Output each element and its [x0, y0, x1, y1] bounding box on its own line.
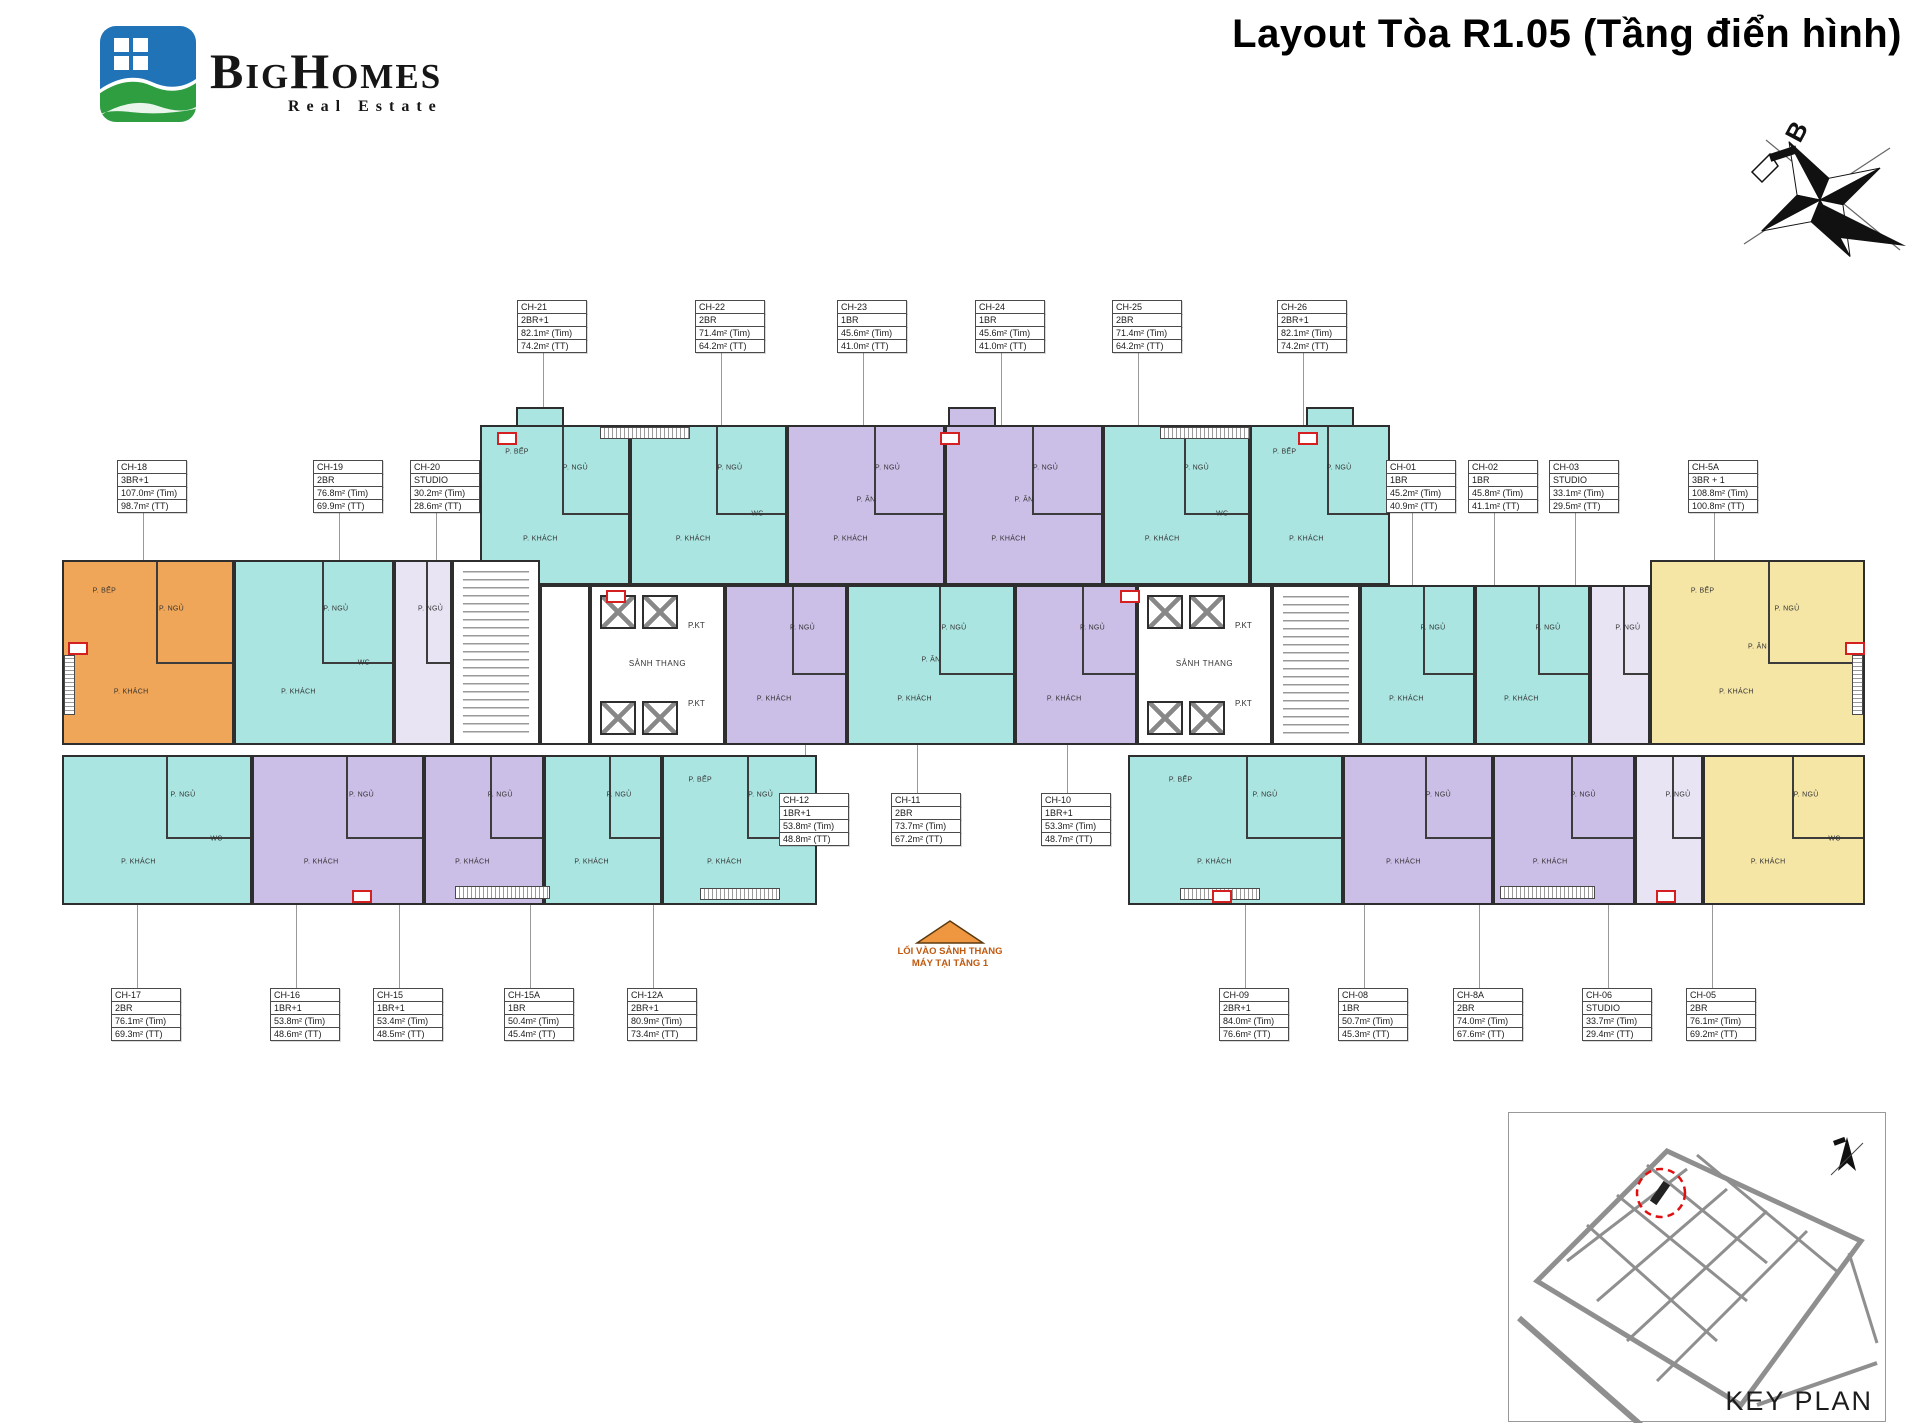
key-plan-map: [1509, 1113, 1887, 1423]
room-label-living: P. KHÁCH: [1504, 696, 1539, 703]
room-label-bedroom: P. NGỦ: [1253, 791, 1278, 798]
loggia-hatch: [1160, 427, 1250, 439]
bay: [1306, 407, 1354, 427]
unit-label-CH-5A: CH-5A3BR + 1108.8m² (Tim)100.8m² (TT): [1688, 460, 1758, 513]
unit-label-tt: 67.2m² (TT): [891, 832, 961, 846]
brand-name: BigHomes: [210, 48, 443, 94]
unit-label-id: CH-19: [313, 460, 383, 474]
room-label-kitchen: P. BẾP: [1273, 448, 1296, 455]
room-label-bedroom: P. NGỦ: [349, 791, 374, 798]
label-leader-line: [1575, 512, 1576, 585]
fire-equipment-box: [1298, 432, 1318, 445]
unit-label-tt: 41.1m² (TT): [1468, 499, 1538, 513]
interior-wall: [609, 837, 660, 839]
label-leader-line: [1364, 905, 1365, 988]
unit-label-tt: 73.4m² (TT): [627, 1027, 697, 1041]
unit-label-tt: 29.5m² (TT): [1549, 499, 1619, 513]
unit-CH-25: P. NGỦP. KHÁCHWC: [1103, 425, 1250, 585]
loggia-hatch: [1500, 886, 1595, 899]
unit-label-type: 1BR+1: [779, 806, 849, 820]
unit-label-tt: 41.0m² (TT): [837, 339, 907, 353]
unit-label-id: CH-23: [837, 300, 907, 314]
unit-label-tim: 76.1m² (Tim): [1686, 1014, 1756, 1028]
unit-label-type: 2BR+1: [1277, 313, 1347, 327]
unit-label-type: 1BR+1: [270, 1001, 340, 1015]
room-label-bedroom: P. NGỦ: [1775, 606, 1800, 613]
compass-north-label: B: [1779, 116, 1814, 147]
unit-label-tt: 76.6m² (TT): [1219, 1027, 1289, 1041]
unit-label-tt: 29.4m² (TT): [1582, 1027, 1652, 1041]
unit-label-CH-06: CH-06STUDIO33.7m² (Tim)29.4m² (TT): [1582, 988, 1652, 1041]
room-label-living: P. KHÁCH: [1386, 859, 1421, 866]
stairs-icon: [1283, 596, 1349, 734]
room-label-wc: WC: [358, 660, 370, 667]
unit-label-CH-21: CH-212BR+182.1m² (Tim)74.2m² (TT): [517, 300, 587, 353]
label-leader-line: [339, 512, 340, 560]
unit-label-tt: 64.2m² (TT): [695, 339, 765, 353]
unit-label-CH-15A: CH-15A1BR50.4m² (Tim)45.4m² (TT): [504, 988, 574, 1041]
unit-CH-02: P. NGỦP. KHÁCH: [1475, 585, 1590, 745]
fire-equipment-box: [352, 890, 372, 903]
unit-label-id: CH-09: [1219, 988, 1289, 1002]
interior-wall: [1032, 513, 1101, 515]
label-leader-line: [917, 745, 918, 793]
elevator-icon: [600, 701, 636, 735]
unit-label-CH-26: CH-262BR+182.1m² (Tim)74.2m² (TT): [1277, 300, 1347, 353]
unit-label-tim: 53.8m² (Tim): [779, 819, 849, 833]
unit-label-CH-05: CH-052BR76.1m² (Tim)69.2m² (TT): [1686, 988, 1756, 1041]
unit-label-CH-18: CH-183BR+1107.0m² (Tim)98.7m² (TT): [117, 460, 187, 513]
interior-wall: [562, 513, 628, 515]
unit-CH-15A: P. NGỦP. KHÁCH: [544, 755, 662, 905]
unit-label-CH-12: CH-121BR+153.8m² (Tim)48.8m² (TT): [779, 793, 849, 846]
label-leader-line: [1303, 352, 1304, 425]
room-label-living: P. KHÁCH: [1389, 696, 1424, 703]
room-label-wc: WC: [210, 835, 222, 842]
unit-label-CH-10: CH-101BR+153.3m² (Tim)48.7m² (TT): [1041, 793, 1111, 846]
unit-label-tt: 64.2m² (TT): [1112, 339, 1182, 353]
room-label-bedroom: P. NGỦ: [159, 606, 184, 613]
room-label-bedroom: P. NGỦ: [1665, 791, 1690, 798]
unit-label-type: 2BR: [1686, 1001, 1756, 1015]
elevator-icon: [1189, 595, 1225, 629]
room-label-wc: WC: [1216, 511, 1228, 518]
unit-label-id: CH-16: [270, 988, 340, 1002]
room-label-bedroom: P. NGỦ: [418, 606, 443, 613]
interior-wall: [1423, 673, 1473, 675]
unit-CH-19: P. NGỦP. KHÁCHWC: [234, 560, 394, 745]
room-label-bedroom: P. NGỦ: [1421, 624, 1446, 631]
interior-wall: [1538, 673, 1588, 675]
unit-label-tt: 45.4m² (TT): [504, 1027, 574, 1041]
room-label-living: P. KHÁCH: [757, 696, 792, 703]
lobby-label: SẢNH THANG: [592, 659, 723, 668]
interior-wall: [1246, 757, 1248, 837]
unit-CH-03: P. NGỦ: [1590, 585, 1650, 745]
room-label-dining: P. ĂN: [1748, 644, 1767, 651]
brand-tagline: Real Estate: [210, 98, 443, 116]
loggia-hatch: [64, 655, 75, 715]
elevator-icon: [642, 701, 678, 735]
interior-wall: [1672, 837, 1701, 839]
room-label-living: P. KHÁCH: [1719, 689, 1754, 696]
label-leader-line: [1067, 745, 1068, 793]
unit-label-tim: 53.3m² (Tim): [1041, 819, 1111, 833]
unit-label-type: STUDIO: [1582, 1001, 1652, 1015]
tech-room-label: P.KT: [688, 699, 705, 708]
unit-label-tim: 80.9m² (Tim): [627, 1014, 697, 1028]
loggia-hatch: [455, 886, 550, 899]
unit-label-id: CH-05: [1686, 988, 1756, 1002]
unit-label-tt: 100.8m² (TT): [1688, 499, 1758, 513]
unit-label-tt: 48.8m² (TT): [779, 832, 849, 846]
interior-wall: [1623, 673, 1648, 675]
unit-label-tt: 69.3m² (TT): [111, 1027, 181, 1041]
unit-label-tim: 50.4m² (Tim): [504, 1014, 574, 1028]
fire-equipment-box: [1656, 890, 1676, 903]
interior-wall: [1082, 673, 1135, 675]
unit-label-type: 1BR: [1468, 473, 1538, 487]
unit-label-tim: 74.0m² (Tim): [1453, 1014, 1523, 1028]
unit-label-tim: 71.4m² (Tim): [1112, 326, 1182, 340]
elevator-core-left: SẢNH THANGP.KTP.KT: [590, 585, 725, 745]
unit-label-CH-02: CH-021BR45.8m² (Tim)41.1m² (TT): [1468, 460, 1538, 513]
room-label-bedroom: P. NGỦ: [171, 791, 196, 798]
unit-label-id: CH-15: [373, 988, 443, 1002]
fire-equipment-box: [497, 432, 517, 445]
unit-label-type: 1BR: [1338, 1001, 1408, 1015]
room-label-living: P. KHÁCH: [1145, 536, 1180, 543]
unit-CH-16: P. NGỦP. KHÁCH: [252, 755, 424, 905]
room-label-kitchen: P. BẾP: [505, 448, 528, 455]
unit-label-CH-24: CH-241BR45.6m² (Tim)41.0m² (TT): [975, 300, 1045, 353]
unit-label-type: 2BR: [891, 806, 961, 820]
unit-CH-08: P. NGỦP. KHÁCH: [1343, 755, 1493, 905]
interior-wall: [1571, 837, 1633, 839]
unit-label-CH-22: CH-222BR71.4m² (Tim)64.2m² (TT): [695, 300, 765, 353]
unit-label-tim: 84.0m² (Tim): [1219, 1014, 1289, 1028]
unit-label-tim: 45.6m² (Tim): [975, 326, 1045, 340]
label-leader-line: [1245, 905, 1246, 988]
unit-label-id: CH-5A: [1688, 460, 1758, 474]
unit-label-tt: 67.6m² (TT): [1453, 1027, 1523, 1041]
unit-label-tt: 69.9m² (TT): [313, 499, 383, 513]
unit-label-CH-20: CH-20STUDIO30.2m² (Tim)28.6m² (TT): [410, 460, 480, 513]
unit-label-id: CH-01: [1386, 460, 1456, 474]
room-label-bedroom: P. NGỦ: [941, 624, 966, 631]
room-label-bedroom: P. NGỦ: [748, 791, 773, 798]
entrance-note-line2: MÁY TẠI TẦNG 1: [872, 958, 1028, 970]
unit-label-tim: 45.8m² (Tim): [1468, 486, 1538, 500]
interior-wall: [426, 662, 450, 664]
unit-label-tim: 71.4m² (Tim): [695, 326, 765, 340]
room-label-living: P. KHÁCH: [833, 536, 868, 543]
unit-CH-05: P. NGỦP. KHÁCHWC: [1703, 755, 1865, 905]
unit-label-CH-03: CH-03STUDIO33.1m² (Tim)29.5m² (TT): [1549, 460, 1619, 513]
unit-label-tt: 98.7m² (TT): [117, 499, 187, 513]
label-leader-line: [1494, 512, 1495, 585]
unit-label-id: CH-22: [695, 300, 765, 314]
unit-label-CH-11: CH-112BR73.7m² (Tim)67.2m² (TT): [891, 793, 961, 846]
unit-label-id: CH-11: [891, 793, 961, 807]
fire-equipment-box: [1212, 890, 1232, 903]
unit-label-type: 3BR+1: [117, 473, 187, 487]
room-label-living: P. KHÁCH: [114, 689, 149, 696]
unit-label-type: STUDIO: [1549, 473, 1619, 487]
unit-label-id: CH-08: [1338, 988, 1408, 1002]
room-label-living: P. KHÁCH: [1197, 859, 1232, 866]
unit-label-tim: 45.2m² (Tim): [1386, 486, 1456, 500]
unit-label-id: CH-20: [410, 460, 480, 474]
unit-label-id: CH-25: [1112, 300, 1182, 314]
unit-CH-5A: P. NGỦP. BẾPP. KHÁCHP. ĂN: [1650, 560, 1865, 745]
unit-label-CH-12A: CH-12A2BR+180.9m² (Tim)73.4m² (TT): [627, 988, 697, 1041]
fire-equipment-box: [606, 590, 626, 603]
room-label-living: P. KHÁCH: [1751, 859, 1786, 866]
room-label-bedroom: P. NGỦ: [606, 791, 631, 798]
room-label-bedroom: P. NGỦ: [717, 464, 742, 471]
label-leader-line: [296, 905, 297, 988]
interior-wall: [346, 837, 422, 839]
room-label-wc: WC: [1828, 835, 1840, 842]
room-label-bedroom: P. NGỦ: [1536, 624, 1561, 631]
unit-label-id: CH-03: [1549, 460, 1619, 474]
label-leader-line: [721, 352, 722, 425]
unit-label-id: CH-8A: [1453, 988, 1523, 1002]
unit-label-CH-01: CH-011BR45.2m² (Tim)40.9m² (TT): [1386, 460, 1456, 513]
room-label-living: P. KHÁCH: [1047, 696, 1082, 703]
room-label-living: P. KHÁCH: [121, 859, 156, 866]
loggia-hatch: [600, 427, 690, 439]
bighomes-logo-icon: [100, 26, 196, 122]
interior-wall: [1768, 662, 1863, 664]
elevator-icon: [642, 595, 678, 629]
interior-wall: [166, 837, 250, 839]
interior-wall: [1768, 562, 1770, 662]
page: BigHomes Real Estate Layout Tòa R1.05 (T…: [0, 0, 1920, 1426]
unit-label-tt: 69.2m² (TT): [1686, 1027, 1756, 1041]
room-label-bedroom: P. NGỦ: [1615, 624, 1640, 631]
fire-equipment-box: [68, 642, 88, 655]
room-label-living: P. KHÁCH: [991, 536, 1026, 543]
unit-label-tt: 28.6m² (TT): [410, 499, 480, 513]
fire-equipment-box: [940, 432, 960, 445]
room-label-living: P. KHÁCH: [676, 536, 711, 543]
label-leader-line: [137, 905, 138, 988]
unit-label-tim: 107.0m² (Tim): [117, 486, 187, 500]
room-label-kitchen: P. BẾP: [93, 587, 116, 594]
unit-CH-12: P. NGỦP. KHÁCH: [725, 585, 847, 745]
room-label-dining: P. ĂN: [922, 657, 941, 664]
unit-label-type: 1BR+1: [1041, 806, 1111, 820]
unit-label-tim: 76.8m² (Tim): [313, 486, 383, 500]
page-title: Layout Tòa R1.05 (Tầng điển hình): [1232, 12, 1902, 57]
interior-wall: [156, 662, 232, 664]
label-leader-line: [1608, 905, 1609, 988]
unit-CH-8A: P. KHÁCHP. NGỦ: [1493, 755, 1635, 905]
room-label-bedroom: P. NGỦ: [790, 624, 815, 631]
unit-label-tt: 48.7m² (TT): [1041, 832, 1111, 846]
unit-label-tim: 33.1m² (Tim): [1549, 486, 1619, 500]
unit-label-tim: 53.8m² (Tim): [270, 1014, 340, 1028]
label-leader-line: [436, 512, 437, 560]
unit-label-CH-08: CH-081BR50.7m² (Tim)45.3m² (TT): [1338, 988, 1408, 1041]
unit-label-type: 2BR+1: [1219, 1001, 1289, 1015]
room-label-bedroom: P. NGỦ: [1184, 464, 1209, 471]
room-label-living: P. KHÁCH: [1289, 536, 1324, 543]
unit-label-type: 2BR: [695, 313, 765, 327]
stair-core-left: [452, 560, 540, 745]
label-leader-line: [530, 905, 531, 988]
unit-label-type: 1BR: [975, 313, 1045, 327]
unit-label-id: CH-02: [1468, 460, 1538, 474]
fire-equipment-box: [1120, 590, 1140, 603]
unit-CH-22: P. NGỦP. KHÁCHWC: [630, 425, 787, 585]
unit-label-tim: 33.7m² (Tim): [1582, 1014, 1652, 1028]
interior-wall: [792, 673, 845, 675]
room-label-bedroom: P. NGỦ: [1571, 791, 1596, 798]
stair-core-right: [1272, 585, 1360, 745]
unit-label-type: 1BR+1: [373, 1001, 443, 1015]
unit-CH-20: P. NGỦ: [394, 560, 452, 745]
unit-label-CH-19: CH-192BR76.8m² (Tim)69.9m² (TT): [313, 460, 383, 513]
unit-label-id: CH-21: [517, 300, 587, 314]
loggia-hatch: [1852, 655, 1863, 715]
unit-CH-09: P. NGỦP. BẾPP. KHÁCH: [1128, 755, 1343, 905]
unit-label-CH-16: CH-161BR+153.8m² (Tim)48.6m² (TT): [270, 988, 340, 1041]
tech-room-label: P.KT: [1235, 699, 1252, 708]
unit-label-CH-23: CH-231BR45.6m² (Tim)41.0m² (TT): [837, 300, 907, 353]
unit-label-tim: 50.7m² (Tim): [1338, 1014, 1408, 1028]
unit-label-tim: 82.1m² (Tim): [1277, 326, 1347, 340]
room-label-bedroom: P. NGỦ: [563, 464, 588, 471]
unit-label-type: 1BR: [1386, 473, 1456, 487]
bighomes-logo: BigHomes Real Estate: [100, 26, 443, 122]
unit-CH-23: P. KHÁCHP. NGỦP. ĂN: [787, 425, 945, 585]
room-label-bedroom: P. NGỦ: [1794, 791, 1819, 798]
elevator-icon: [1189, 701, 1225, 735]
entrance-marker-icon: [914, 918, 986, 946]
unit-CH-10: P. NGỦP. KHÁCH: [1015, 585, 1137, 745]
label-leader-line: [143, 512, 144, 560]
unit-label-type: STUDIO: [410, 473, 480, 487]
room-label-bedroom: P. NGỦ: [1080, 624, 1105, 631]
unit-label-tt: 48.5m² (TT): [373, 1027, 443, 1041]
label-leader-line: [1001, 352, 1002, 425]
elevator-icon: [1147, 701, 1183, 735]
label-leader-line: [863, 352, 864, 425]
unit-label-id: CH-10: [1041, 793, 1111, 807]
entrance-note-line1: LỐI VÀO SẢNH THANG: [872, 946, 1028, 958]
room-label-dining: P. ĂN: [857, 497, 876, 504]
room-label-bedroom: P. NGỦ: [1426, 791, 1451, 798]
label-leader-line: [1714, 512, 1715, 560]
bay: [948, 407, 996, 427]
unit-label-type: 2BR: [1453, 1001, 1523, 1015]
room-label-living: P. KHÁCH: [574, 859, 609, 866]
room-label-dining: P. ĂN: [1015, 497, 1034, 504]
label-leader-line: [653, 905, 654, 988]
room-label-bedroom: P. NGỦ: [488, 791, 513, 798]
unit-label-tim: 76.1m² (Tim): [111, 1014, 181, 1028]
unit-label-CH-15: CH-151BR+153.4m² (Tim)48.5m² (TT): [373, 988, 443, 1041]
unit-label-tt: 41.0m² (TT): [975, 339, 1045, 353]
unit-label-type: 1BR: [837, 313, 907, 327]
unit-label-id: CH-17: [111, 988, 181, 1002]
tech-room-label: P.KT: [688, 621, 705, 630]
unit-label-id: CH-24: [975, 300, 1045, 314]
unit-label-tim: 82.1m² (Tim): [517, 326, 587, 340]
key-plan: KEY PLAN: [1508, 1112, 1886, 1422]
interior-wall: [1327, 513, 1388, 515]
unit-CH-26: P. BẾPP. NGỦP. KHÁCH: [1250, 425, 1390, 585]
label-leader-line: [1138, 352, 1139, 425]
interior-wall: [939, 673, 1013, 675]
lobby-label: SẢNH THANG: [1139, 659, 1270, 668]
elevator-core-right: SẢNH THANGP.KTP.KT: [1137, 585, 1272, 745]
fire-equipment-box: [1845, 642, 1865, 655]
unit-label-id: CH-26: [1277, 300, 1347, 314]
unit-CH-11: P. NGỦP. KHÁCHP. ĂN: [847, 585, 1015, 745]
unit-label-id: CH-18: [117, 460, 187, 474]
unit-label-tt: 74.2m² (TT): [517, 339, 587, 353]
unit-label-type: 2BR+1: [517, 313, 587, 327]
bay: [516, 407, 564, 427]
room-label-bedroom: P. NGỦ: [875, 464, 900, 471]
unit-CH-15: P. KHÁCHP. NGỦ: [424, 755, 544, 905]
unit-label-CH-8A: CH-8A2BR74.0m² (Tim)67.6m² (TT): [1453, 988, 1523, 1041]
room-label-living: P. KHÁCH: [281, 689, 316, 696]
unit-CH-01: P. NGỦP. KHÁCH: [1360, 585, 1475, 745]
unit-CH-17: P. KHÁCHP. NGỦWC: [62, 755, 252, 905]
interior-wall: [1246, 837, 1341, 839]
unit-label-tim: 45.6m² (Tim): [837, 326, 907, 340]
interior-wall: [874, 513, 943, 515]
unit-CH-24: P. KHÁCHP. NGỦP. ĂN: [945, 425, 1103, 585]
entrance-note: LỐI VÀO SẢNH THANG MÁY TẠI TẦNG 1: [872, 946, 1028, 970]
key-plan-compass-icon: [1831, 1137, 1863, 1175]
room-label-kitchen: P. BẾP: [1691, 587, 1714, 594]
unit-CH-06: P. NGỦ: [1635, 755, 1703, 905]
label-leader-line: [1479, 905, 1480, 988]
corridor-left: [540, 585, 590, 745]
unit-label-id: CH-12A: [627, 988, 697, 1002]
unit-label-type: 1BR: [504, 1001, 574, 1015]
interior-wall: [166, 757, 168, 837]
unit-label-tt: 40.9m² (TT): [1386, 499, 1456, 513]
interior-wall: [490, 837, 542, 839]
room-label-living: P. KHÁCH: [304, 859, 339, 866]
unit-label-id: CH-06: [1582, 988, 1652, 1002]
room-label-living: P. KHÁCH: [523, 536, 558, 543]
room-label-bedroom: P. NGỦ: [323, 606, 348, 613]
unit-label-CH-17: CH-172BR76.1m² (Tim)69.3m² (TT): [111, 988, 181, 1041]
key-plan-label: KEY PLAN: [1725, 1386, 1873, 1417]
unit-label-id: CH-15A: [504, 988, 574, 1002]
label-leader-line: [1712, 905, 1713, 988]
unit-label-CH-25: CH-252BR71.4m² (Tim)64.2m² (TT): [1112, 300, 1182, 353]
unit-label-type: 2BR+1: [627, 1001, 697, 1015]
interior-wall: [1425, 837, 1491, 839]
room-label-living: P. KHÁCH: [455, 859, 490, 866]
loggia-hatch: [700, 888, 780, 900]
unit-label-type: 2BR: [1112, 313, 1182, 327]
room-label-kitchen: P. BẾP: [689, 777, 712, 784]
label-leader-line: [399, 905, 400, 988]
unit-label-tim: 108.8m² (Tim): [1688, 486, 1758, 500]
unit-label-id: CH-12: [779, 793, 849, 807]
room-label-wc: WC: [751, 511, 763, 518]
